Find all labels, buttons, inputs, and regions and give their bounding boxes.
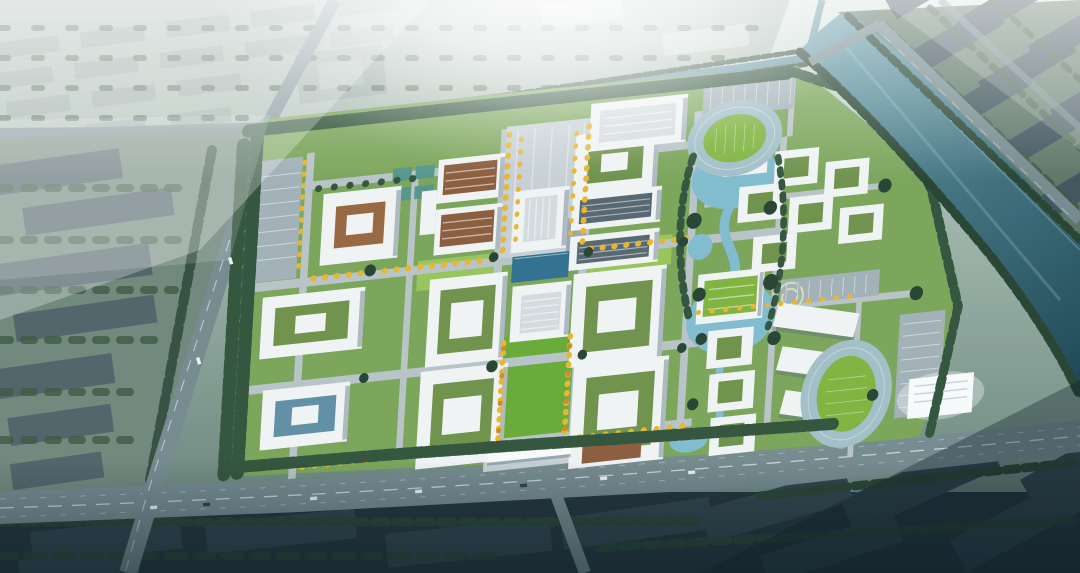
haze-overlay — [0, 115, 270, 280]
aerial-rendering — [0, 0, 1080, 573]
atmosphere — [0, 0, 1080, 573]
